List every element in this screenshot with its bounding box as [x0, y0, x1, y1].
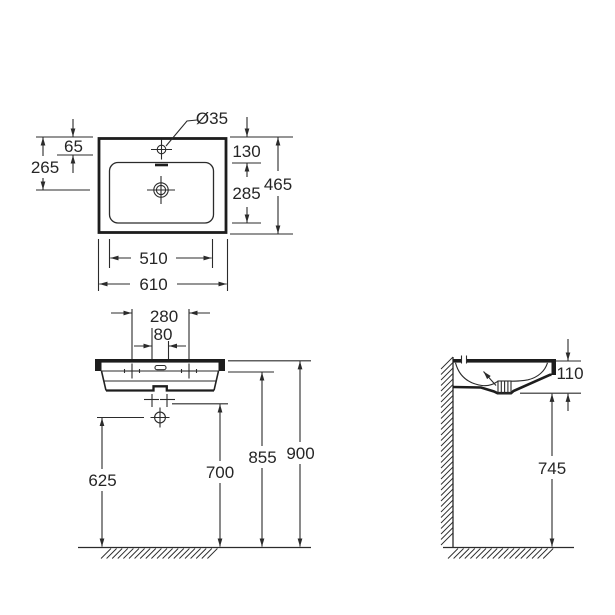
- fixing-hole-symbol-left: [125, 364, 140, 379]
- bowl-slope-arrow: [484, 372, 497, 386]
- dim-label-clearance-height: 745: [538, 459, 566, 478]
- dim-front-heights: 625 700 855 900: [88, 361, 314, 547]
- tap-diameter-leader-line: [166, 120, 197, 146]
- side-basin-bottom-profile: [453, 375, 552, 393]
- dim-label-bowl-depth: 285: [232, 184, 260, 203]
- dim-label-underside-height: 700: [206, 463, 234, 482]
- side-ground-hatch: [448, 549, 553, 559]
- dim-label-overall-depth: 465: [264, 175, 292, 194]
- washbasin-technical-drawing: Ø35 65 265 130 285 465: [0, 0, 615, 615]
- dim-plan-left: 65 265: [31, 119, 93, 190]
- plan-view: Ø35 65 265 130 285 465: [31, 109, 293, 294]
- front-overflow-slot: [155, 366, 166, 370]
- dim-front-top: 280 80: [111, 307, 210, 359]
- dim-label-section-height: 110: [556, 364, 583, 383]
- fixing-hole-symbol-right: [182, 364, 197, 379]
- dim-label-trap-height: 625: [88, 471, 116, 490]
- front-basin-outline: [95, 359, 225, 391]
- dim-label-drain-slot-width: 80: [154, 325, 173, 344]
- dim-label-fixing-spacing: 280: [150, 307, 178, 326]
- side-view: 110 745: [441, 339, 584, 559]
- side-front-lip: [552, 359, 557, 375]
- dim-label-tap-offset: 65: [64, 137, 83, 156]
- front-view: 280 80: [78, 307, 315, 559]
- side-basin-section: [453, 356, 556, 394]
- dim-label-tap-diameter: Ø35: [196, 109, 228, 128]
- dim-plan-bottom: 510 610: [99, 239, 228, 294]
- dim-label-drain-offset: 265: [31, 158, 59, 177]
- dim-label-overall-height: 900: [286, 444, 314, 463]
- front-basin-bottom-edge: [106, 386, 214, 390]
- drain-tail-marks: [144, 394, 175, 407]
- plan-drain-symbol: [147, 176, 175, 204]
- front-ground-hatch: [101, 549, 217, 559]
- wall-hatch: [441, 357, 453, 545]
- dim-label-rim-underside-height: 855: [248, 448, 276, 467]
- dim-label-overall-width: 610: [139, 275, 167, 294]
- dim-label-bowl-width: 510: [139, 249, 167, 268]
- side-bowl-curve-left: [456, 363, 498, 386]
- trap-outlet-symbol: [151, 408, 170, 428]
- drawing-canvas: Ø35 65 265 130 285 465: [0, 0, 615, 615]
- dim-plan-right: 130 285 465: [230, 117, 293, 234]
- dim-label-bowl-back-offset: 130: [232, 142, 260, 161]
